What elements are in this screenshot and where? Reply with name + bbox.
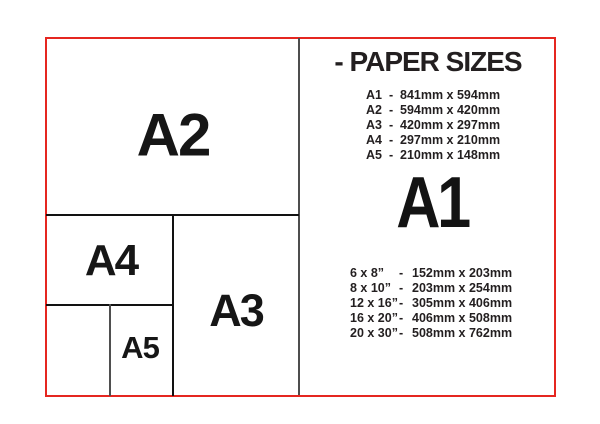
dash-separator: -	[399, 266, 412, 281]
size-row: A3 - 420mm x 297mm	[366, 118, 500, 133]
size-label: 12 x 16”	[350, 296, 399, 311]
size-row: 20 x 30” - 508mm x 762mm	[350, 326, 512, 341]
size-row: 6 x 8” - 152mm x 203mm	[350, 266, 512, 281]
size-dimensions: 297mm x 210mm	[400, 133, 500, 148]
dash-separator: -	[389, 133, 400, 148]
a5-left-line	[109, 304, 111, 396]
size-dimensions: 152mm x 203mm	[412, 266, 512, 281]
size-dimensions: 594mm x 420mm	[400, 103, 500, 118]
size-label: A2	[366, 103, 389, 118]
size-label: A5	[366, 148, 389, 163]
dash-separator: -	[399, 311, 412, 326]
size-row: A5 - 210mm x 148mm	[366, 148, 500, 163]
size-row: 8 x 10” - 203mm x 254mm	[350, 281, 512, 296]
size-dimensions: 420mm x 297mm	[400, 118, 500, 133]
size-dimensions: 406mm x 508mm	[412, 311, 512, 326]
size-dimensions: 841mm x 594mm	[400, 88, 500, 103]
size-label: A1	[366, 88, 389, 103]
size-label: 16 x 20”	[350, 311, 399, 326]
dash-separator: -	[399, 281, 412, 296]
size-row: 12 x 16” - 305mm x 406mm	[350, 296, 512, 311]
size-label: 6 x 8”	[350, 266, 399, 281]
dash-separator: -	[389, 148, 400, 163]
featured-size-label: A1	[396, 162, 467, 244]
metric-size-list: A1 - 841mm x 594mm A2 - 594mm x 420mm A3…	[366, 88, 500, 163]
imperial-size-list: 6 x 8” - 152mm x 203mm 8 x 10” - 203mm x…	[350, 266, 512, 341]
a5-box-label: A5	[121, 330, 159, 366]
size-row: A4 - 297mm x 210mm	[366, 133, 500, 148]
panel-divider-line	[298, 38, 300, 395]
size-dimensions: 210mm x 148mm	[400, 148, 500, 163]
size-label: A3	[366, 118, 389, 133]
dash-separator: -	[399, 296, 412, 311]
size-row: A2 - 594mm x 420mm	[366, 103, 500, 118]
size-dimensions: 203mm x 254mm	[412, 281, 512, 296]
size-label: 8 x 10”	[350, 281, 399, 296]
size-label: 20 x 30”	[350, 326, 399, 341]
a2-box-label: A2	[137, 101, 210, 170]
dash-separator: -	[389, 118, 400, 133]
size-row: 16 x 20” - 406mm x 508mm	[350, 311, 512, 326]
a3-box-label: A3	[209, 285, 263, 337]
size-dimensions: 305mm x 406mm	[412, 296, 512, 311]
size-dimensions: 508mm x 762mm	[412, 326, 512, 341]
page-title: - PAPER SIZES	[300, 46, 556, 78]
dash-separator: -	[389, 88, 400, 103]
size-row: A1 - 841mm x 594mm	[366, 88, 500, 103]
paper-sizes-diagram: A2 A4 A3 A5 - PAPER SIZES A1 - 841mm x 5…	[0, 0, 600, 424]
dash-separator: -	[389, 103, 400, 118]
dash-separator: -	[399, 326, 412, 341]
a4-box-label: A4	[85, 236, 137, 286]
size-label: A4	[366, 133, 389, 148]
